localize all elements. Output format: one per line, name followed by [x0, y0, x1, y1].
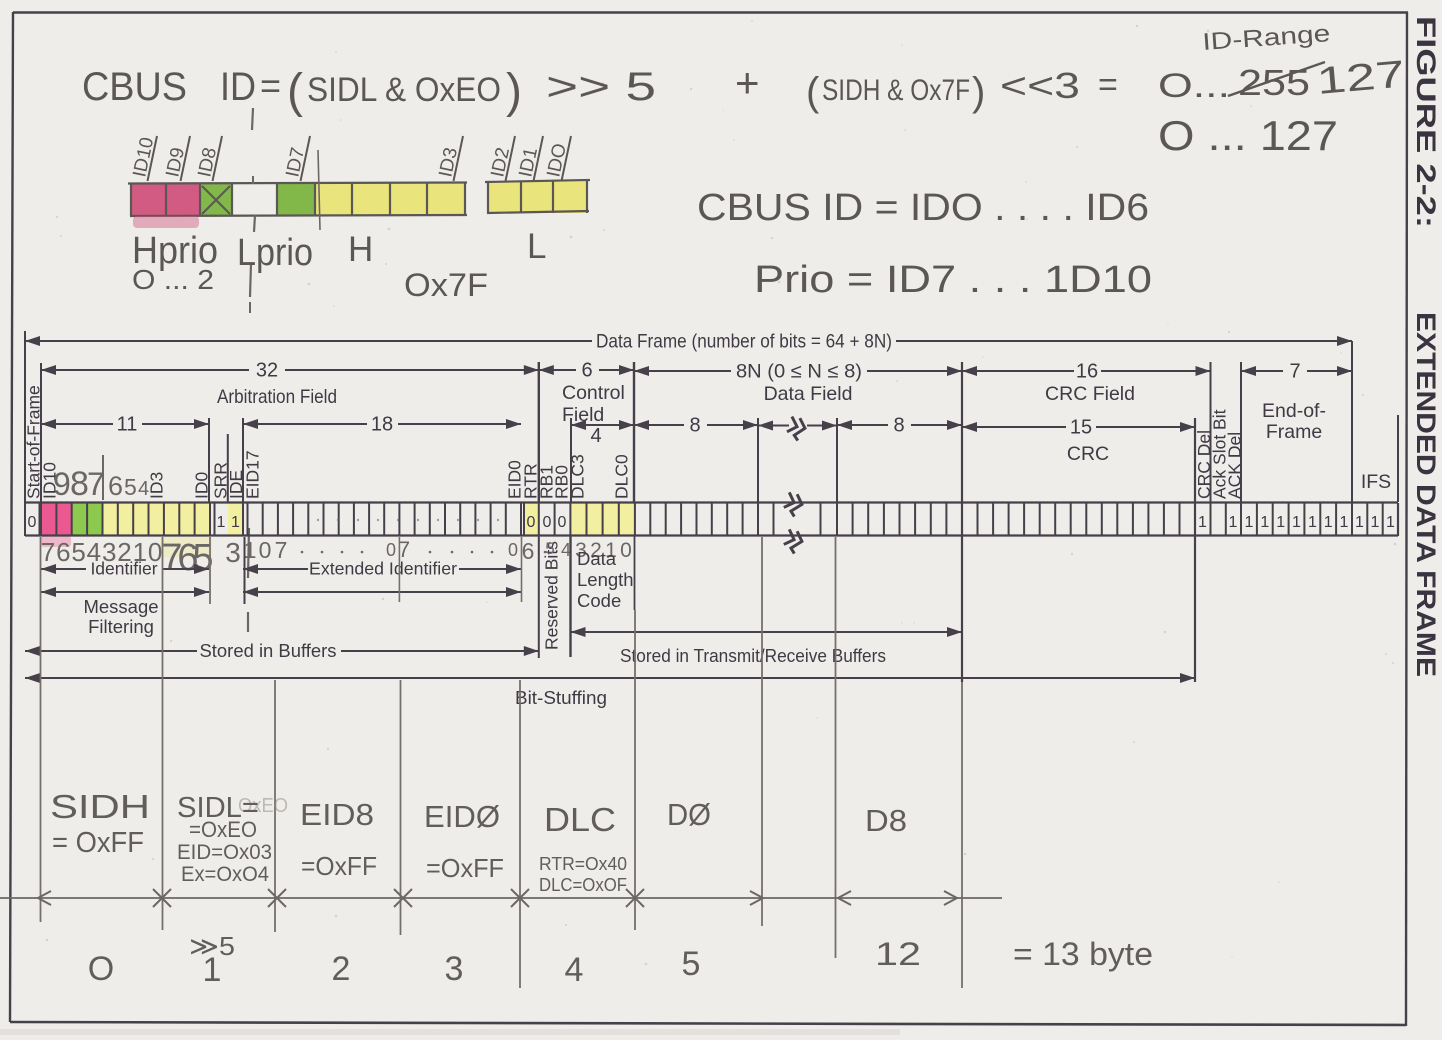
svg-text:0: 0	[259, 537, 272, 563]
svg-text:End-of-: End-of-	[1262, 400, 1326, 422]
svg-text:Ex=OxO4: Ex=OxO4	[181, 863, 269, 886]
svg-text:1: 1	[1355, 514, 1364, 531]
svg-text:Message: Message	[83, 596, 158, 617]
svg-text:O: O	[88, 950, 114, 988]
svg-text:16: 16	[1076, 361, 1098, 383]
svg-text:1: 1	[1229, 514, 1238, 531]
svg-text:1: 1	[203, 951, 222, 989]
svg-text:1: 1	[1276, 514, 1285, 531]
svg-text:1: 1	[231, 514, 240, 531]
svg-text:5: 5	[682, 945, 701, 983]
svg-text:>> 5: >> 5	[546, 65, 656, 109]
svg-text:Frame: Frame	[1266, 421, 1322, 443]
svg-text:RTR=Ox40: RTR=Ox40	[539, 854, 627, 874]
svg-text:6: 6	[522, 538, 535, 564]
svg-text:32: 32	[256, 360, 278, 382]
svg-text:0: 0	[527, 514, 536, 531]
svg-text:+: +	[735, 59, 760, 106]
svg-text:Identifier: Identifier	[90, 559, 157, 579]
svg-text:1: 1	[1260, 514, 1269, 531]
svg-text:4: 4	[138, 478, 149, 500]
svg-text:8: 8	[893, 415, 904, 437]
svg-text:DLC=OxOF: DLC=OxOF	[539, 875, 627, 895]
svg-text:6: 6	[56, 537, 70, 567]
svg-text:): )	[972, 70, 985, 114]
svg-text:ID: ID	[220, 65, 256, 109]
svg-text:3: 3	[445, 950, 464, 988]
svg-text:9: 9	[53, 466, 71, 502]
svg-text:15: 15	[1070, 417, 1092, 439]
svg-text:EID8: EID8	[300, 797, 374, 832]
svg-text:Data: Data	[577, 548, 617, 569]
svg-text:Code: Code	[577, 590, 621, 611]
svg-text:EID=Ox03: EID=Ox03	[177, 841, 272, 864]
svg-text:255: 255	[1238, 62, 1310, 103]
svg-text:12: 12	[875, 936, 921, 972]
svg-text:SIDH & Ox7F: SIDH & Ox7F	[822, 74, 970, 107]
svg-text:7: 7	[1289, 361, 1300, 383]
svg-text:7: 7	[41, 537, 55, 567]
svg-text:D8: D8	[865, 803, 907, 838]
svg-text:1: 1	[1340, 514, 1349, 531]
svg-text:O ... 2: O ... 2	[132, 264, 214, 295]
svg-text:0: 0	[508, 540, 518, 560]
svg-text:Filtering: Filtering	[88, 616, 154, 637]
svg-text:127: 127	[1315, 53, 1406, 103]
svg-text:7: 7	[275, 537, 288, 563]
svg-text:Extended Identifier: Extended Identifier	[309, 559, 457, 579]
svg-text:EXTENDED DATA FRAME: EXTENDED DATA FRAME	[1411, 312, 1441, 677]
svg-text:O...: O...	[1158, 67, 1230, 105]
svg-text:CBUS ID = IDO . . . . ID6: CBUS ID = IDO . . . . ID6	[697, 187, 1149, 229]
svg-text:1: 1	[1386, 514, 1395, 531]
svg-text:(: (	[287, 65, 303, 118]
svg-text:6: 6	[581, 360, 592, 382]
svg-text:Lprio: Lprio	[237, 232, 313, 274]
svg-text:=OxFF: =OxFF	[426, 853, 504, 883]
svg-text:H: H	[348, 230, 373, 269]
svg-text:ID0: ID0	[192, 472, 212, 500]
svg-text:6: 6	[108, 471, 123, 501]
svg-text:0: 0	[620, 539, 632, 562]
svg-text:DØ: DØ	[667, 797, 711, 832]
svg-text:ID3: ID3	[147, 472, 167, 499]
svg-text:Stored in Transmit/Receive Buf: Stored in Transmit/Receive Buffers	[620, 645, 886, 666]
svg-text:ACK Del: ACK Del	[1225, 432, 1245, 499]
svg-text:4: 4	[590, 425, 601, 447]
svg-text:5: 5	[71, 537, 85, 567]
svg-text:18: 18	[371, 414, 393, 436]
svg-text:5: 5	[124, 474, 137, 500]
svg-text:1: 1	[244, 537, 257, 563]
svg-text:Data Field: Data Field	[764, 383, 853, 405]
svg-text:Data Frame (number of bits = 6: Data Frame (number of bits = 64 + 8N)	[596, 331, 892, 353]
svg-text:SIDL & OxEO: SIDL & OxEO	[307, 71, 501, 109]
svg-text:1: 1	[1198, 514, 1207, 531]
svg-text:Prio = ID7 . . . 1D10: Prio = ID7 . . . 1D10	[754, 259, 1152, 301]
svg-text:DLC0: DLC0	[612, 454, 632, 499]
svg-text:): )	[506, 65, 522, 118]
svg-text:5: 5	[545, 539, 554, 558]
svg-text:Arbitration Field: Arbitration Field	[217, 386, 337, 408]
svg-text:<<3: <<3	[1000, 65, 1080, 106]
svg-text:Ox7F: Ox7F	[404, 267, 488, 303]
svg-text:FIGURE 2-2:: FIGURE 2-2:	[1411, 16, 1441, 228]
svg-text:1: 1	[1292, 514, 1301, 531]
svg-text:= 13 byte: = 13 byte	[1013, 936, 1153, 972]
svg-text:2: 2	[332, 950, 351, 988]
svg-text:IFS: IFS	[1361, 471, 1391, 493]
svg-text:0: 0	[543, 514, 552, 531]
svg-text:Control: Control	[562, 382, 625, 404]
svg-text:Stored in Buffers: Stored in Buffers	[200, 640, 337, 661]
svg-text:DLC: DLC	[544, 801, 616, 838]
svg-text:11: 11	[117, 414, 138, 436]
svg-text:1: 1	[1308, 514, 1317, 531]
svg-text:1: 1	[1245, 514, 1254, 531]
svg-text:CBUS: CBUS	[82, 65, 187, 109]
svg-text:0: 0	[386, 540, 396, 560]
svg-text:L: L	[527, 227, 546, 266]
svg-text:8N (0 ≤ N ≤ 8): 8N (0 ≤ N ≤ 8)	[736, 361, 862, 383]
svg-text:=: =	[260, 65, 281, 106]
svg-text:(: (	[806, 70, 820, 114]
svg-text:0: 0	[558, 514, 567, 531]
svg-text:SIDH: SIDH	[50, 788, 150, 825]
svg-text:0: 0	[28, 514, 37, 531]
svg-text:= OxFF: = OxFF	[52, 827, 144, 859]
svg-text:1: 1	[1371, 514, 1380, 531]
svg-text:8: 8	[689, 415, 700, 437]
svg-text:O ... 127: O ... 127	[1158, 112, 1338, 159]
svg-text:1: 1	[1324, 514, 1333, 531]
svg-text:1: 1	[217, 514, 226, 531]
svg-text:EIDØ: EIDØ	[424, 799, 500, 834]
svg-text:CRC: CRC	[1067, 443, 1109, 465]
svg-text:Length: Length	[577, 569, 634, 590]
svg-text:DLC3: DLC3	[568, 454, 588, 499]
svg-text:3: 3	[225, 537, 241, 568]
svg-text:=OxEO: =OxEO	[189, 817, 257, 842]
svg-text:=OxFF: =OxFF	[301, 851, 377, 881]
svg-text:4: 4	[565, 951, 584, 989]
svg-text:EID17: EID17	[243, 450, 263, 499]
svg-text:=: =	[1098, 66, 1118, 104]
svg-text:CRC Field: CRC Field	[1045, 383, 1135, 405]
svg-text:Bit-Stuffing: Bit-Stuffing	[515, 687, 607, 708]
